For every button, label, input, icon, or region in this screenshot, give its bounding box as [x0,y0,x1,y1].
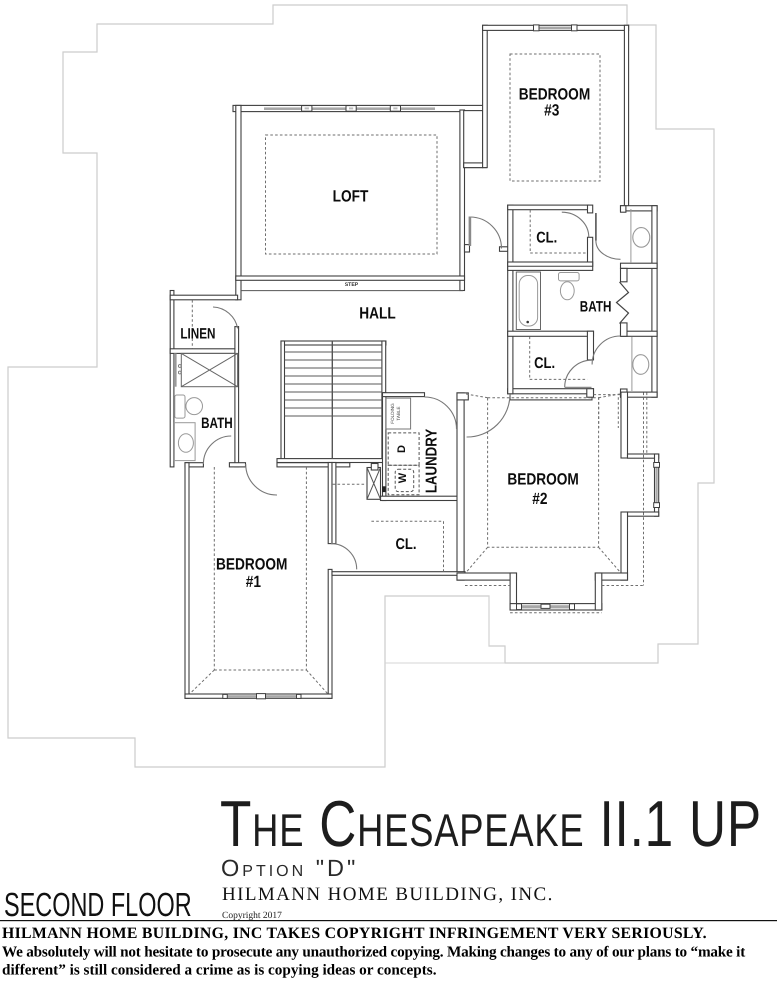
svg-text:different” is still considered: different” is still considered a crime a… [2,962,437,979]
svg-text:BEDROOM: BEDROOM [507,471,578,489]
svg-text:FOLDING: FOLDING [390,403,395,424]
svg-text:Copyright 2017: Copyright 2017 [222,911,282,921]
svg-text:LAUNDRY: LAUNDRY [424,428,441,493]
svg-text:CL.: CL. [396,536,417,553]
svg-text:CL.: CL. [536,230,557,247]
svg-text:STEP: STEP [345,282,359,288]
svg-text:HILMANN HOME BUILDING, INC TAK: HILMANN HOME BUILDING, INC TAKES COPYRIG… [2,925,707,942]
svg-text:LINEN: LINEN [180,326,215,343]
svg-text:W: W [397,472,409,483]
svg-text:CL.: CL. [534,355,555,372]
svg-text:HALL: HALL [359,304,396,322]
svg-text:D: D [396,445,408,453]
svg-text:BEDROOM: BEDROOM [216,555,287,573]
svg-text:#3: #3 [544,102,559,120]
svg-text:LOFT: LOFT [333,188,369,206]
svg-text:BATH: BATH [201,415,233,432]
svg-text:SECOND FLOOR: SECOND FLOOR [4,887,192,924]
svg-text:#1: #1 [246,573,261,591]
svg-text:We absolutely will not hesitat: We absolutely will not hesitate to prose… [2,944,745,961]
svg-text:HILMANN HOME BUILDING, INC.: HILMANN HOME BUILDING, INC. [222,884,554,905]
svg-text:BATH: BATH [580,299,612,316]
svg-text:Option "D": Option "D" [221,855,358,881]
svg-text:#2: #2 [532,490,547,508]
svg-text:The Chesapeake II.1 UP: The Chesapeake II.1 UP [220,787,762,860]
svg-text:TABLE: TABLE [396,406,401,420]
